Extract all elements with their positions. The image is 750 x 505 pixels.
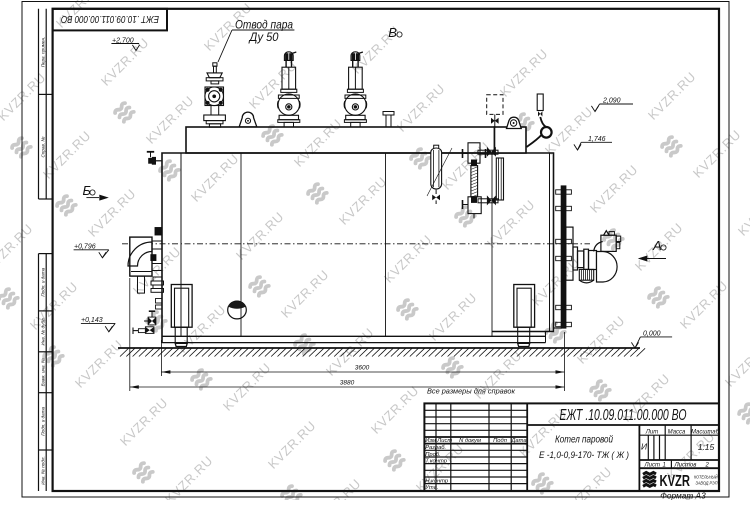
svg-text:N докум: N докум bbox=[459, 438, 481, 444]
svg-text:Н.контр: Н.контр bbox=[425, 479, 449, 485]
svg-text:Подп: Подп bbox=[493, 438, 508, 444]
svg-text:Е -1,0-0,9-170- ТЖ ( Ж ): Е -1,0-0,9-170- ТЖ ( Ж ) bbox=[539, 450, 629, 461]
svg-text:Т.контр: Т.контр bbox=[425, 459, 448, 465]
svg-text:Инв. № дубл.: Инв. № дубл. bbox=[41, 317, 46, 345]
svg-text:Ду 50: Ду 50 bbox=[248, 30, 279, 44]
svg-text:ЕЖТ .10.09.011.00.000 ВО: ЕЖТ .10.09.011.00.000 ВО bbox=[560, 407, 687, 424]
svg-text:Лист: Лист bbox=[436, 438, 452, 444]
svg-text:Все размеры для справок: Все размеры для справок bbox=[427, 388, 516, 396]
svg-text:Разраб.: Разраб. bbox=[425, 445, 446, 451]
svg-text:В: В bbox=[388, 25, 397, 40]
svg-text:Изм: Изм bbox=[425, 438, 436, 444]
svg-text:3880: 3880 bbox=[340, 379, 355, 386]
svg-text:3600: 3600 bbox=[355, 364, 370, 371]
svg-text:Взам. инв. №: Взам. инв. № bbox=[41, 358, 46, 386]
svg-text:Справ. №: Справ. № bbox=[41, 137, 46, 158]
svg-text:И: И bbox=[641, 442, 648, 452]
svg-text:ЕЖТ .10.09.011.00.000 ВО: ЕЖТ .10.09.011.00.000 ВО bbox=[61, 13, 159, 24]
svg-text:КОТЕЛЬНЫЙ: КОТЕЛЬНЫЙ bbox=[694, 473, 718, 480]
svg-text:Масса: Масса bbox=[668, 430, 686, 436]
svg-text:Инв. № подл.: Инв. № подл. bbox=[41, 456, 46, 485]
svg-text:2: 2 bbox=[705, 463, 710, 469]
svg-text:ЗАВОД РЭП: ЗАВОД РЭП bbox=[696, 481, 719, 486]
svg-text:1: 1 bbox=[663, 463, 666, 469]
svg-text:KVZR: KVZR bbox=[660, 473, 691, 490]
svg-text:Б: Б bbox=[83, 183, 92, 198]
svg-text:1:15: 1:15 bbox=[698, 442, 715, 452]
svg-text:Дата: Дата bbox=[510, 438, 527, 444]
svg-text:Проб.: Проб. bbox=[425, 452, 441, 458]
svg-text:Перв. примен.: Перв. примен. bbox=[41, 37, 46, 68]
svg-text:0,000: 0,000 bbox=[643, 330, 661, 337]
svg-text:Лист: Лист bbox=[644, 463, 660, 469]
svg-text:Утв.: Утв. bbox=[424, 485, 438, 491]
svg-text:Котел паровой: Котел паровой bbox=[555, 435, 613, 446]
svg-text:Лит: Лит bbox=[645, 430, 658, 436]
svg-text:Масштаб: Масштаб bbox=[691, 430, 720, 436]
svg-text:2,090: 2,090 bbox=[602, 98, 621, 105]
svg-text:Подп. и дата: Подп. и дата bbox=[41, 267, 46, 296]
svg-text:Листов: Листов bbox=[674, 463, 697, 469]
svg-text:Подп. и дата: Подп. и дата bbox=[41, 406, 46, 435]
svg-text:А: А bbox=[652, 238, 662, 253]
svg-text:+0,796: +0,796 bbox=[74, 243, 96, 250]
svg-text:Формат А3: Формат А3 bbox=[660, 491, 706, 501]
